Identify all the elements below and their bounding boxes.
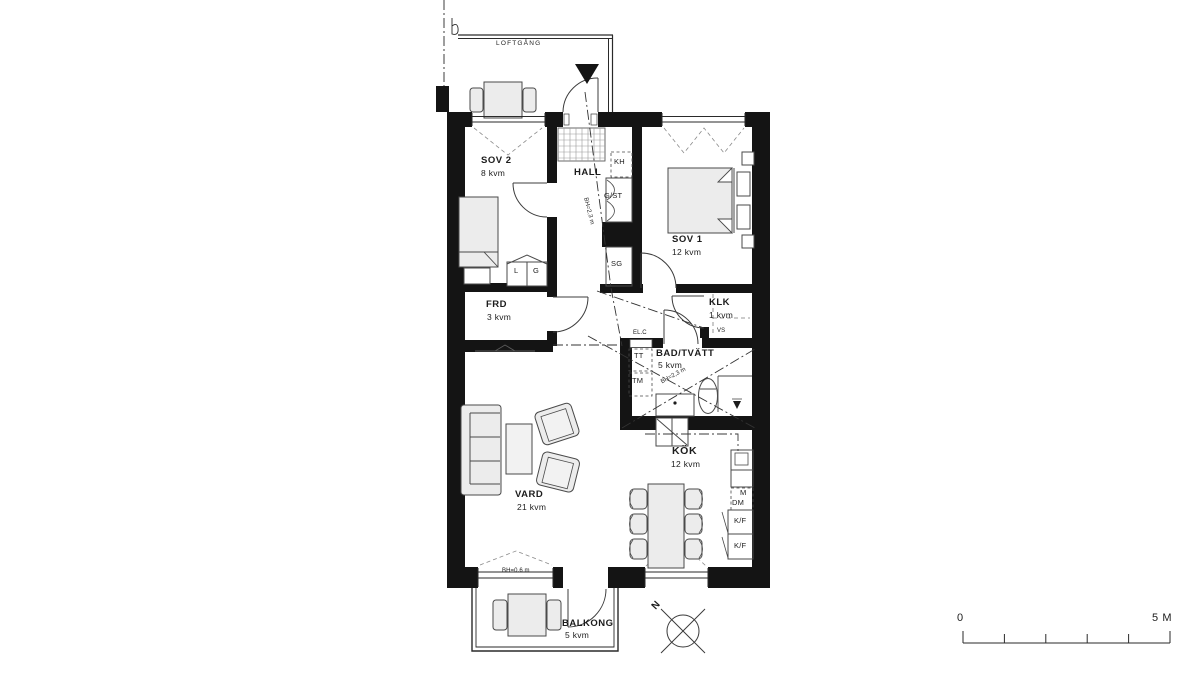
closet-label-sg: SG — [611, 260, 622, 268]
scale-bar — [963, 631, 1170, 643]
room-area-vard: 21 kvm — [517, 503, 546, 512]
balcony-furniture — [493, 594, 561, 636]
appliance-label-dm: DM — [732, 499, 744, 507]
walkway-label: LOFTGÅNG — [496, 41, 541, 48]
closet-label-gst: G/ST — [604, 192, 622, 200]
room-label-sov2: SOV 2 — [481, 156, 512, 166]
ceiling-height-lines — [553, 92, 755, 428]
north-arrow-icon — [661, 609, 705, 653]
floor-plan-drawing — [0, 0, 1200, 675]
scale-end-label: 5 M — [1152, 613, 1172, 624]
room-area-frd: 3 kvm — [487, 313, 511, 322]
room-label-kok: KÖK — [672, 446, 697, 457]
living-room-furniture — [461, 402, 581, 495]
appliance-label-kf-bottom: K/F — [734, 542, 746, 550]
appliance-label-tt: TT — [634, 352, 644, 360]
dining-set — [630, 484, 703, 568]
technical-label-vs: VS — [717, 328, 725, 334]
room-label-frd: FRD — [486, 300, 507, 310]
closet-label-kh: KH — [614, 158, 625, 166]
appliance-label-kf-top: K/F — [734, 517, 746, 525]
closet-label-l: L — [514, 267, 518, 275]
appliance-label-m: M — [740, 489, 746, 497]
bathroom-fixtures — [629, 349, 752, 416]
technical-label-elc: EL.C — [633, 330, 647, 336]
window-sill-height-label: BH=0.6 m — [502, 568, 530, 574]
entrance-arrow-icon — [575, 64, 599, 84]
room-label-klk: KLK — [709, 298, 730, 308]
closet-label-g: G — [533, 267, 539, 275]
electrical-cabinet — [630, 340, 652, 348]
walkway-furniture-table — [470, 82, 536, 118]
floor-plan-page: LOFTGÅNG SOV 2 8 kvm HALL KH G/ST SG L G… — [0, 0, 1200, 675]
doormat — [558, 128, 605, 161]
room-label-bad-tvatt: BAD/TVÄTT — [656, 349, 714, 359]
room-label-vard: VARD — [515, 490, 543, 500]
room-area-sov2: 8 kvm — [481, 169, 505, 178]
room-area-klk: 1 kvm — [709, 311, 733, 320]
room-area-balkong: 5 kvm — [565, 631, 589, 640]
appliance-label-tm: TM — [632, 377, 643, 385]
room-area-kok: 12 kvm — [671, 460, 700, 469]
room-label-sov1: SOV 1 — [672, 235, 703, 245]
room-area-sov1: 12 kvm — [672, 248, 701, 257]
room-label-hall: HALL — [574, 168, 601, 178]
scale-start-label: 0 — [957, 613, 964, 624]
room-label-balkong: BALKONG — [562, 619, 614, 629]
